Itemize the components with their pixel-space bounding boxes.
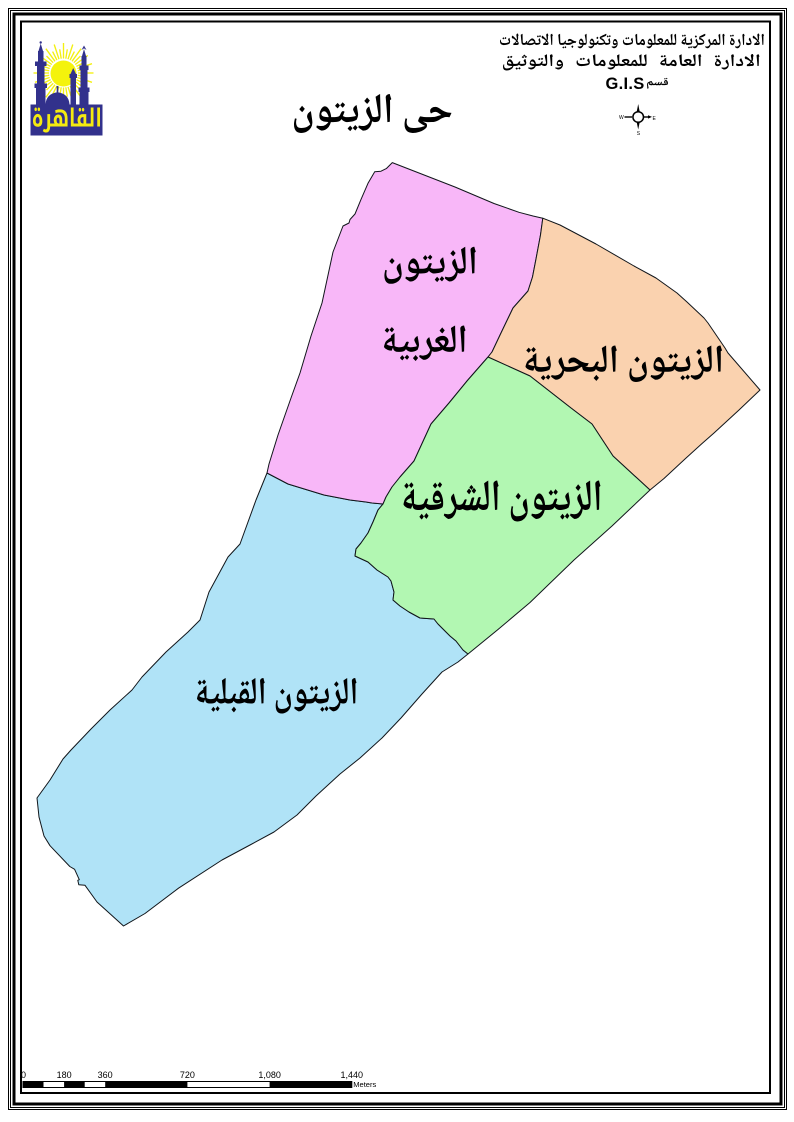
svg-text:1,080: 1,080 xyxy=(258,1070,281,1080)
svg-text:G.I.S: G.I.S xyxy=(606,75,645,93)
svg-text:0: 0 xyxy=(21,1070,26,1080)
svg-text:S: S xyxy=(637,131,641,137)
svg-text:1,440: 1,440 xyxy=(341,1070,364,1080)
svg-text:E: E xyxy=(653,116,657,122)
svg-text:W: W xyxy=(619,115,624,121)
svg-text:Meters: Meters xyxy=(353,1080,376,1089)
svg-text:180: 180 xyxy=(57,1070,72,1080)
svg-text:720: 720 xyxy=(180,1070,195,1080)
svg-text:360: 360 xyxy=(98,1070,113,1080)
